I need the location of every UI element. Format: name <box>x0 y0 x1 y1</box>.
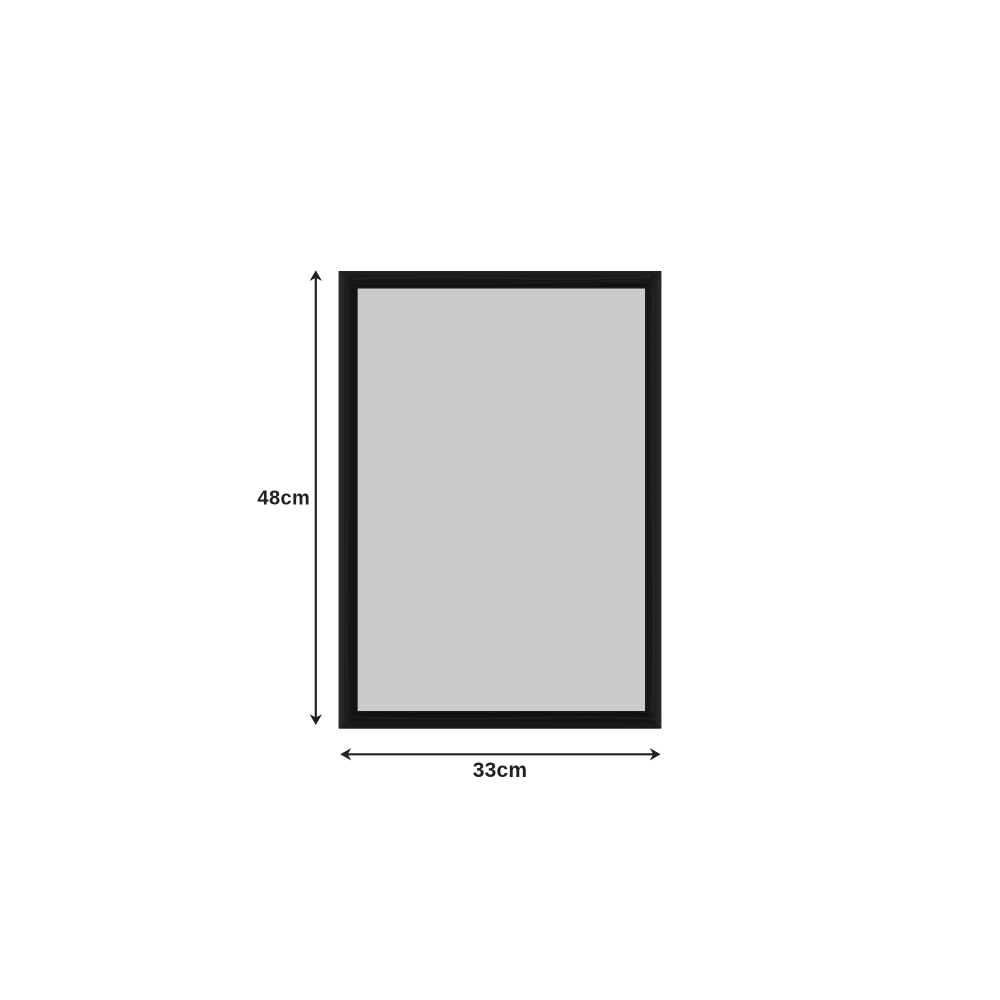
svg-text:33cm: 33cm <box>473 759 528 782</box>
svg-text:48cm: 48cm <box>257 487 310 509</box>
